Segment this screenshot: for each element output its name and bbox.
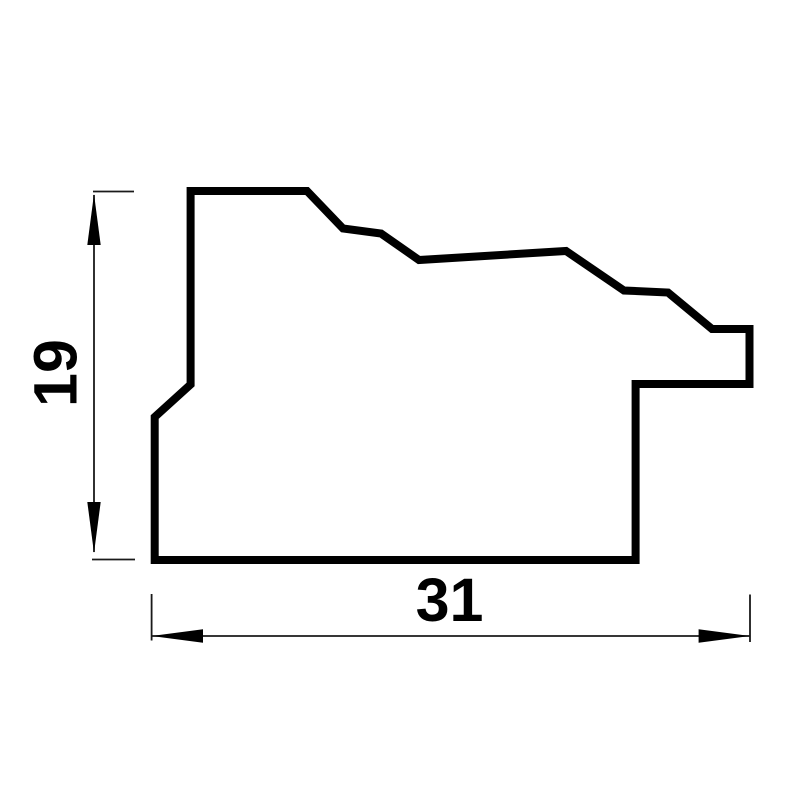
svg-text:19: 19 bbox=[22, 339, 90, 407]
svg-text:31: 31 bbox=[416, 566, 484, 634]
